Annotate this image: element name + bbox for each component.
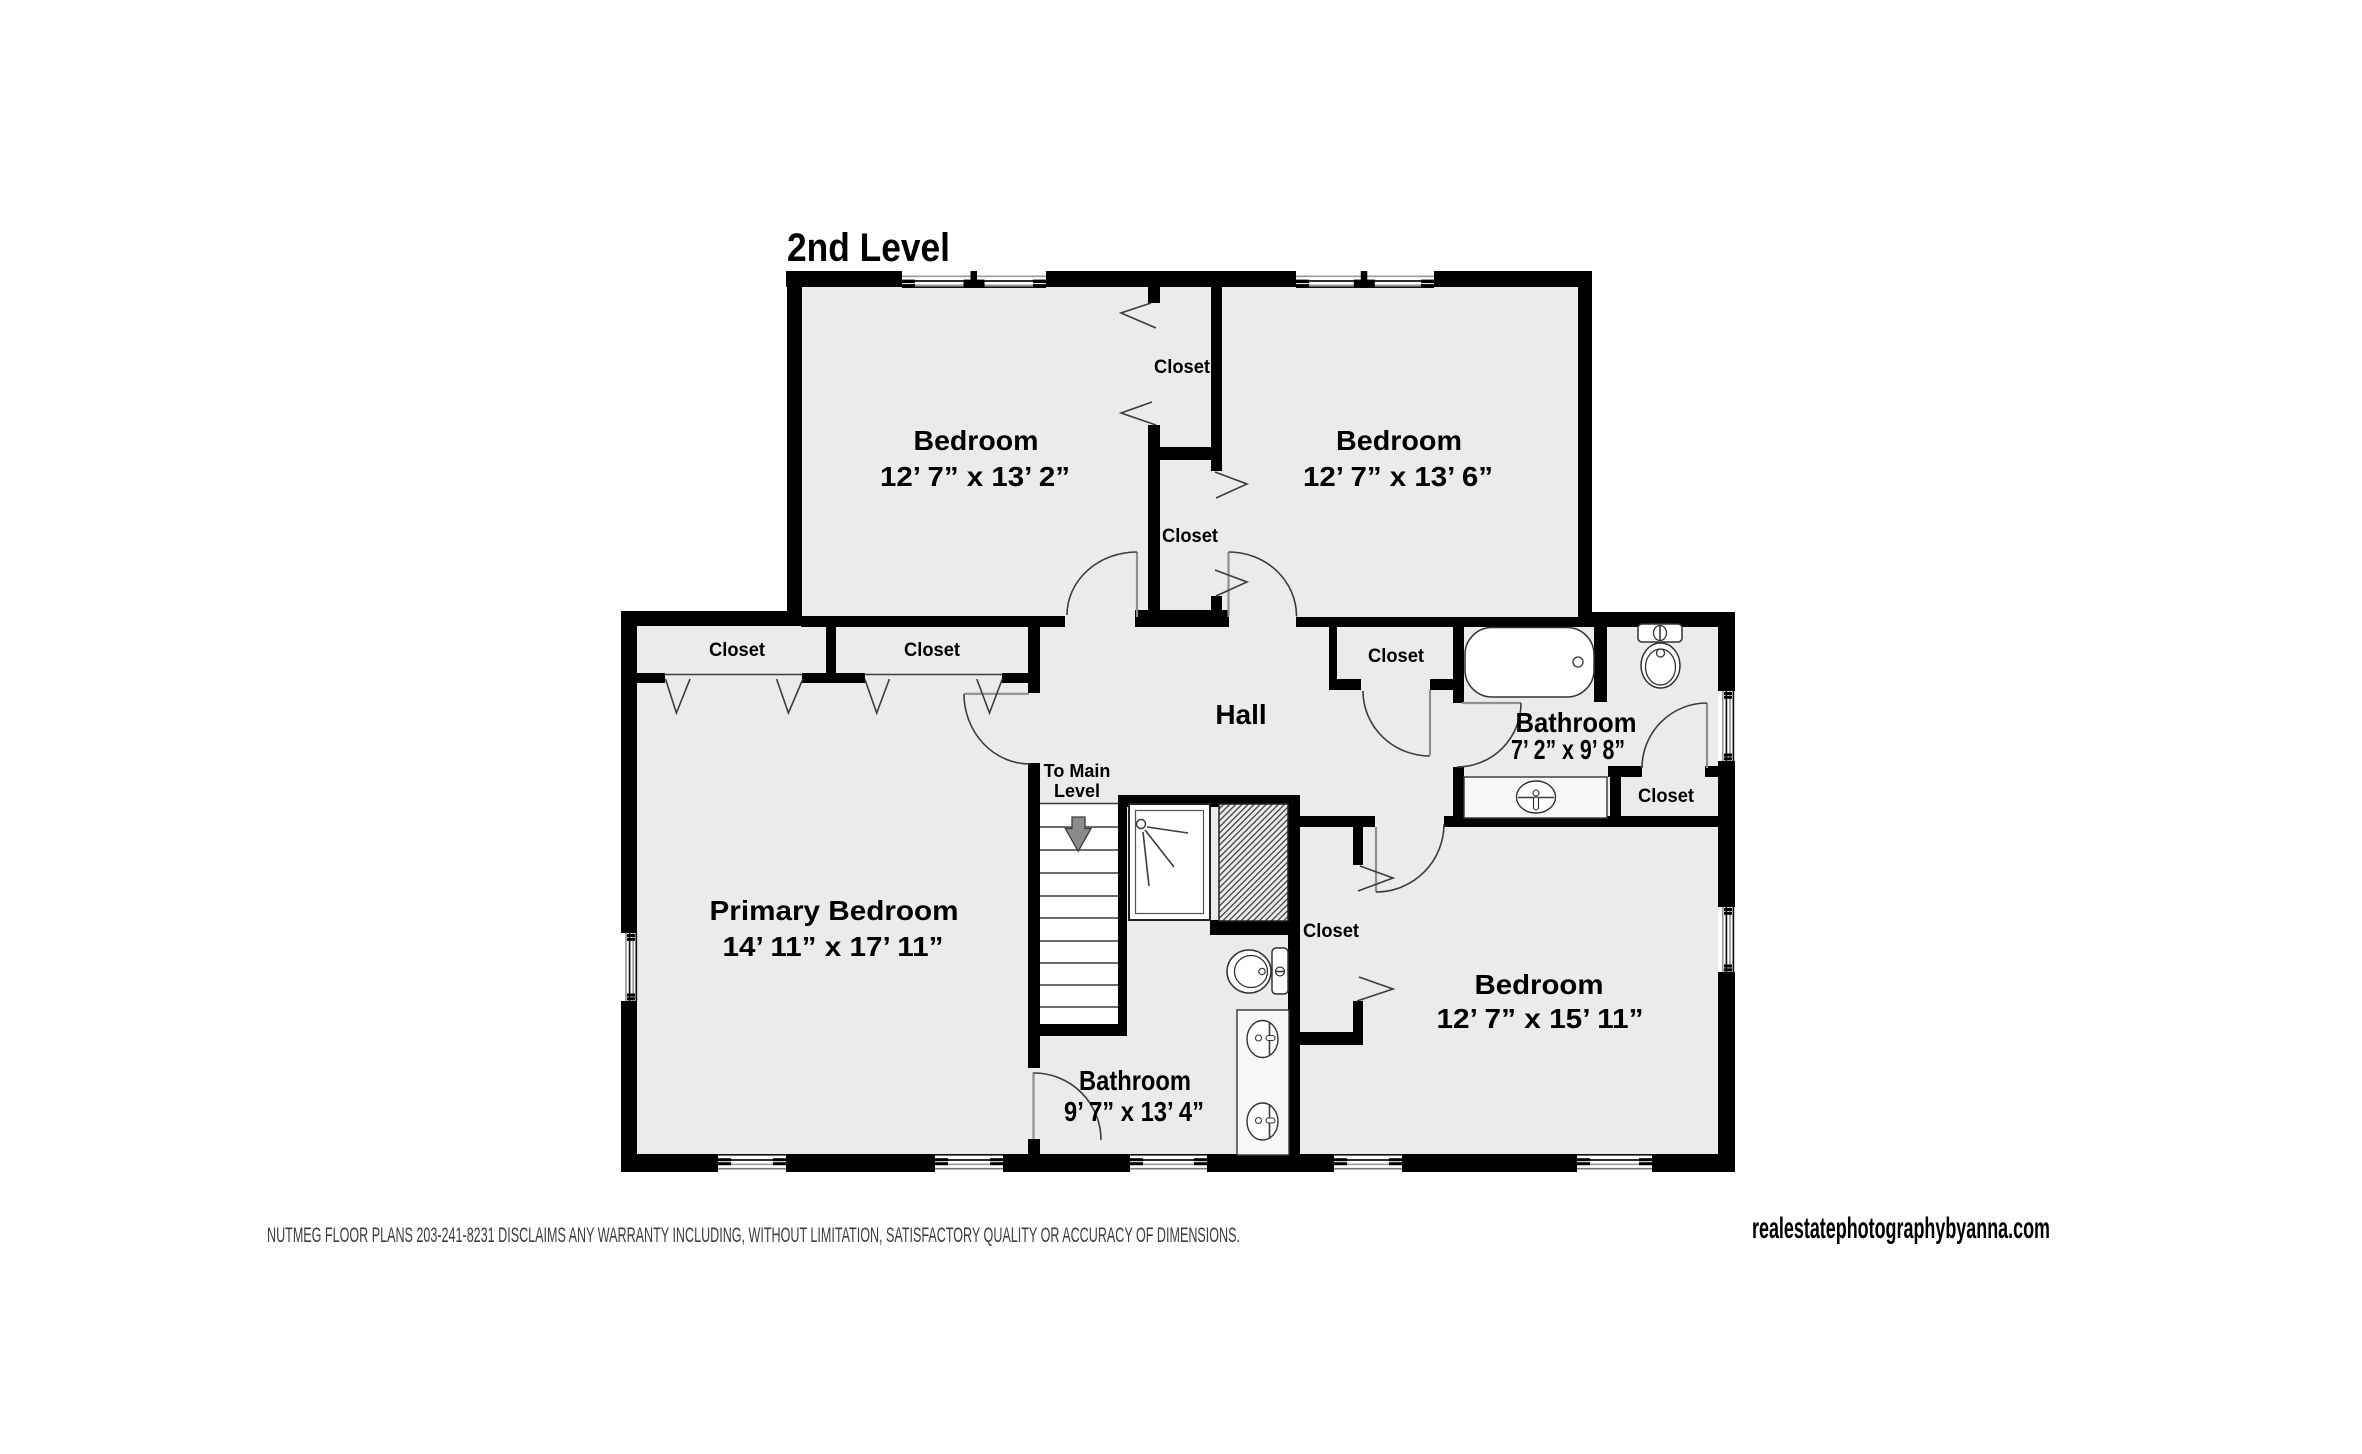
- svg-text:Closet: Closet: [1162, 526, 1219, 547]
- svg-text:12’ 7” x 13’ 2”: 12’ 7” x 13’ 2”: [880, 461, 1070, 492]
- svg-text:Bedroom: Bedroom: [914, 425, 1039, 456]
- svg-text:14’ 11” x 17’ 11”: 14’ 11” x 17’ 11”: [723, 931, 944, 962]
- svg-text:Closet: Closet: [709, 640, 766, 661]
- svg-text:9’ 7” x 13’ 4”: 9’ 7” x 13’ 4”: [1064, 1096, 1204, 1127]
- svg-text:Closet: Closet: [904, 640, 961, 661]
- svg-text:NUTMEG FLOOR PLANS 203-241-823: NUTMEG FLOOR PLANS 203-241-8231 DISCLAIM…: [267, 1224, 1240, 1247]
- svg-text:7’ 2” x 9’ 8”: 7’ 2” x 9’ 8”: [1511, 734, 1625, 765]
- svg-text:Closet: Closet: [1303, 921, 1360, 942]
- svg-text:realestatephotographybyanna.co: realestatephotographybyanna.com: [1752, 1212, 2050, 1245]
- svg-text:Closet: Closet: [1154, 357, 1211, 378]
- svg-text:12’ 7” x 15’ 11”: 12’ 7” x 15’ 11”: [1437, 1003, 1644, 1034]
- svg-text:2nd Level: 2nd Level: [787, 226, 950, 270]
- svg-text:Closet: Closet: [1638, 786, 1695, 807]
- svg-text:Closet: Closet: [1368, 646, 1425, 667]
- svg-text:Bathroom: Bathroom: [1079, 1065, 1191, 1096]
- svg-text:Bedroom: Bedroom: [1475, 969, 1604, 1000]
- svg-text:Bedroom: Bedroom: [1336, 425, 1462, 456]
- svg-text:Level: Level: [1054, 781, 1100, 801]
- svg-text:Primary Bedroom: Primary Bedroom: [710, 895, 959, 926]
- svg-text:To Main: To Main: [1044, 761, 1111, 781]
- svg-text:Hall: Hall: [1215, 699, 1266, 730]
- svg-text:12’ 7” x 13’ 6”: 12’ 7” x 13’ 6”: [1303, 461, 1493, 492]
